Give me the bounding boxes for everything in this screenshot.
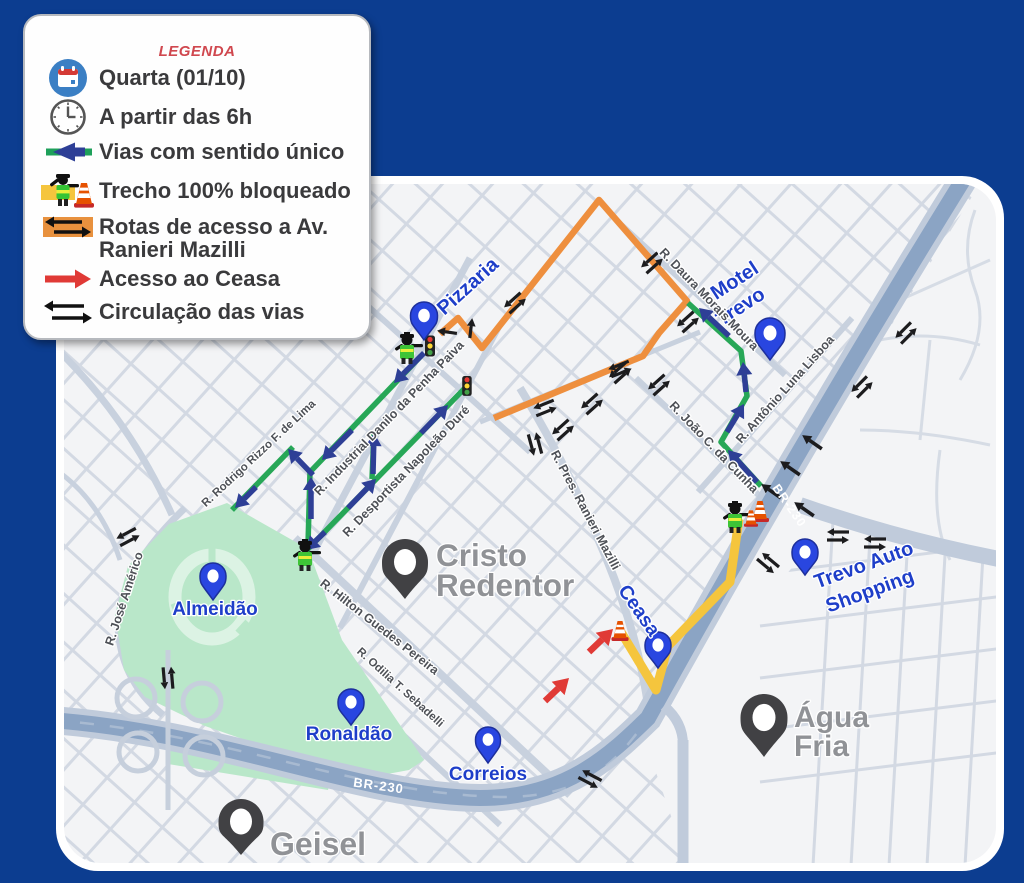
- svg-text:Ronaldão: Ronaldão: [306, 724, 393, 745]
- svg-text:Fria: Fria: [794, 730, 849, 763]
- svg-text:Almeidão: Almeidão: [172, 599, 258, 620]
- svg-text:Geisel: Geisel: [270, 826, 366, 862]
- svg-text:Redentor: Redentor: [436, 567, 574, 603]
- svg-text:Correios: Correios: [449, 764, 527, 785]
- svg-text:Água: Água: [794, 700, 869, 734]
